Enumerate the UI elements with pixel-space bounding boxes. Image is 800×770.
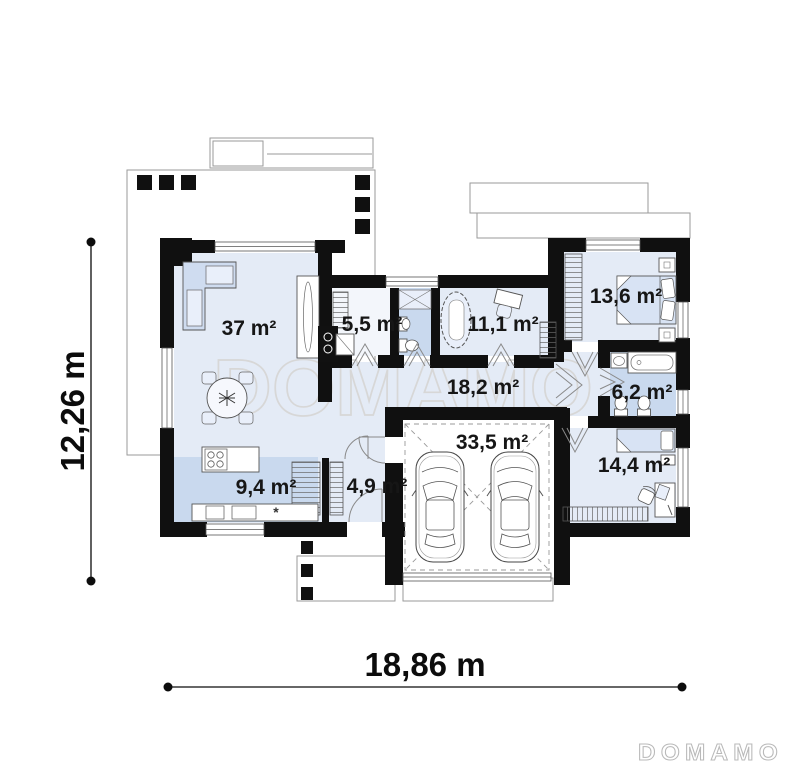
terrace-pillar — [159, 175, 174, 190]
terrace-pillar — [355, 219, 370, 234]
sink-marker: * — [273, 504, 279, 520]
window — [678, 448, 688, 507]
room-label-living: 37 m² — [222, 317, 277, 340]
wardrobe-icon — [330, 462, 343, 515]
dimension-height: 12,26 m — [54, 238, 96, 586]
room-label-garage: 33,5 m² — [456, 431, 528, 454]
window — [206, 524, 264, 535]
window — [586, 240, 640, 250]
wardrobe-icon — [565, 254, 582, 340]
kitchen-counter-icon: * — [192, 504, 318, 521]
desk-icon — [655, 483, 675, 517]
porch-pillar — [301, 541, 313, 554]
room-label-hall: 4,9 m² — [347, 475, 408, 498]
terrace-pillar — [181, 175, 196, 190]
room-label-bedroom1: 13,6 m² — [590, 285, 662, 308]
wardrobe-icon — [563, 507, 648, 521]
dimension-width-label: 18,86 m — [364, 646, 485, 683]
washbasin-icon — [611, 353, 627, 368]
driveway — [403, 578, 553, 601]
washing-machine-icon — [336, 334, 354, 355]
terrace-pillar — [137, 175, 152, 190]
terrace-pillar — [355, 197, 370, 212]
nightstand-icon — [659, 328, 675, 342]
window — [678, 302, 688, 338]
dimension-width: 18,86 m — [164, 646, 687, 692]
room-label-hallway: 18,2 m² — [447, 376, 519, 399]
porch-pillar — [301, 564, 313, 577]
oven-stack-icon — [318, 326, 338, 362]
window — [386, 277, 438, 286]
floor-plan-page: DOMAMO — [0, 0, 800, 770]
brand-logo: DOMAMO — [638, 739, 783, 765]
bathtub-icon — [628, 352, 676, 373]
car-icon — [412, 452, 468, 562]
room-label-bathroom: 6,2 m² — [612, 381, 673, 404]
nightstand-icon — [659, 258, 675, 272]
tall-cabinet-icon — [297, 276, 319, 358]
floor-plan-drawing: DOMAMO — [0, 0, 800, 770]
terrace-pillar — [355, 175, 370, 190]
room-label-pantry: 5,5 m² — [342, 313, 403, 336]
window — [678, 390, 688, 414]
garage-door — [403, 573, 551, 581]
shower-icon — [399, 290, 431, 309]
room-label-bedroom2: 14,4 m² — [598, 454, 670, 477]
porch-pillar — [301, 587, 313, 600]
car-icon — [487, 452, 543, 562]
kitchen-island-icon — [202, 447, 259, 472]
dining-table-icon — [202, 372, 253, 424]
shelf-icon — [540, 322, 556, 358]
room-label-office: 11,1 m² — [467, 313, 538, 336]
window — [162, 348, 172, 428]
window — [215, 242, 315, 251]
room-label-kitchen: 9,4 m² — [236, 476, 297, 499]
pantry-furniture — [336, 334, 354, 355]
dimension-height-label: 12,26 m — [54, 350, 91, 471]
